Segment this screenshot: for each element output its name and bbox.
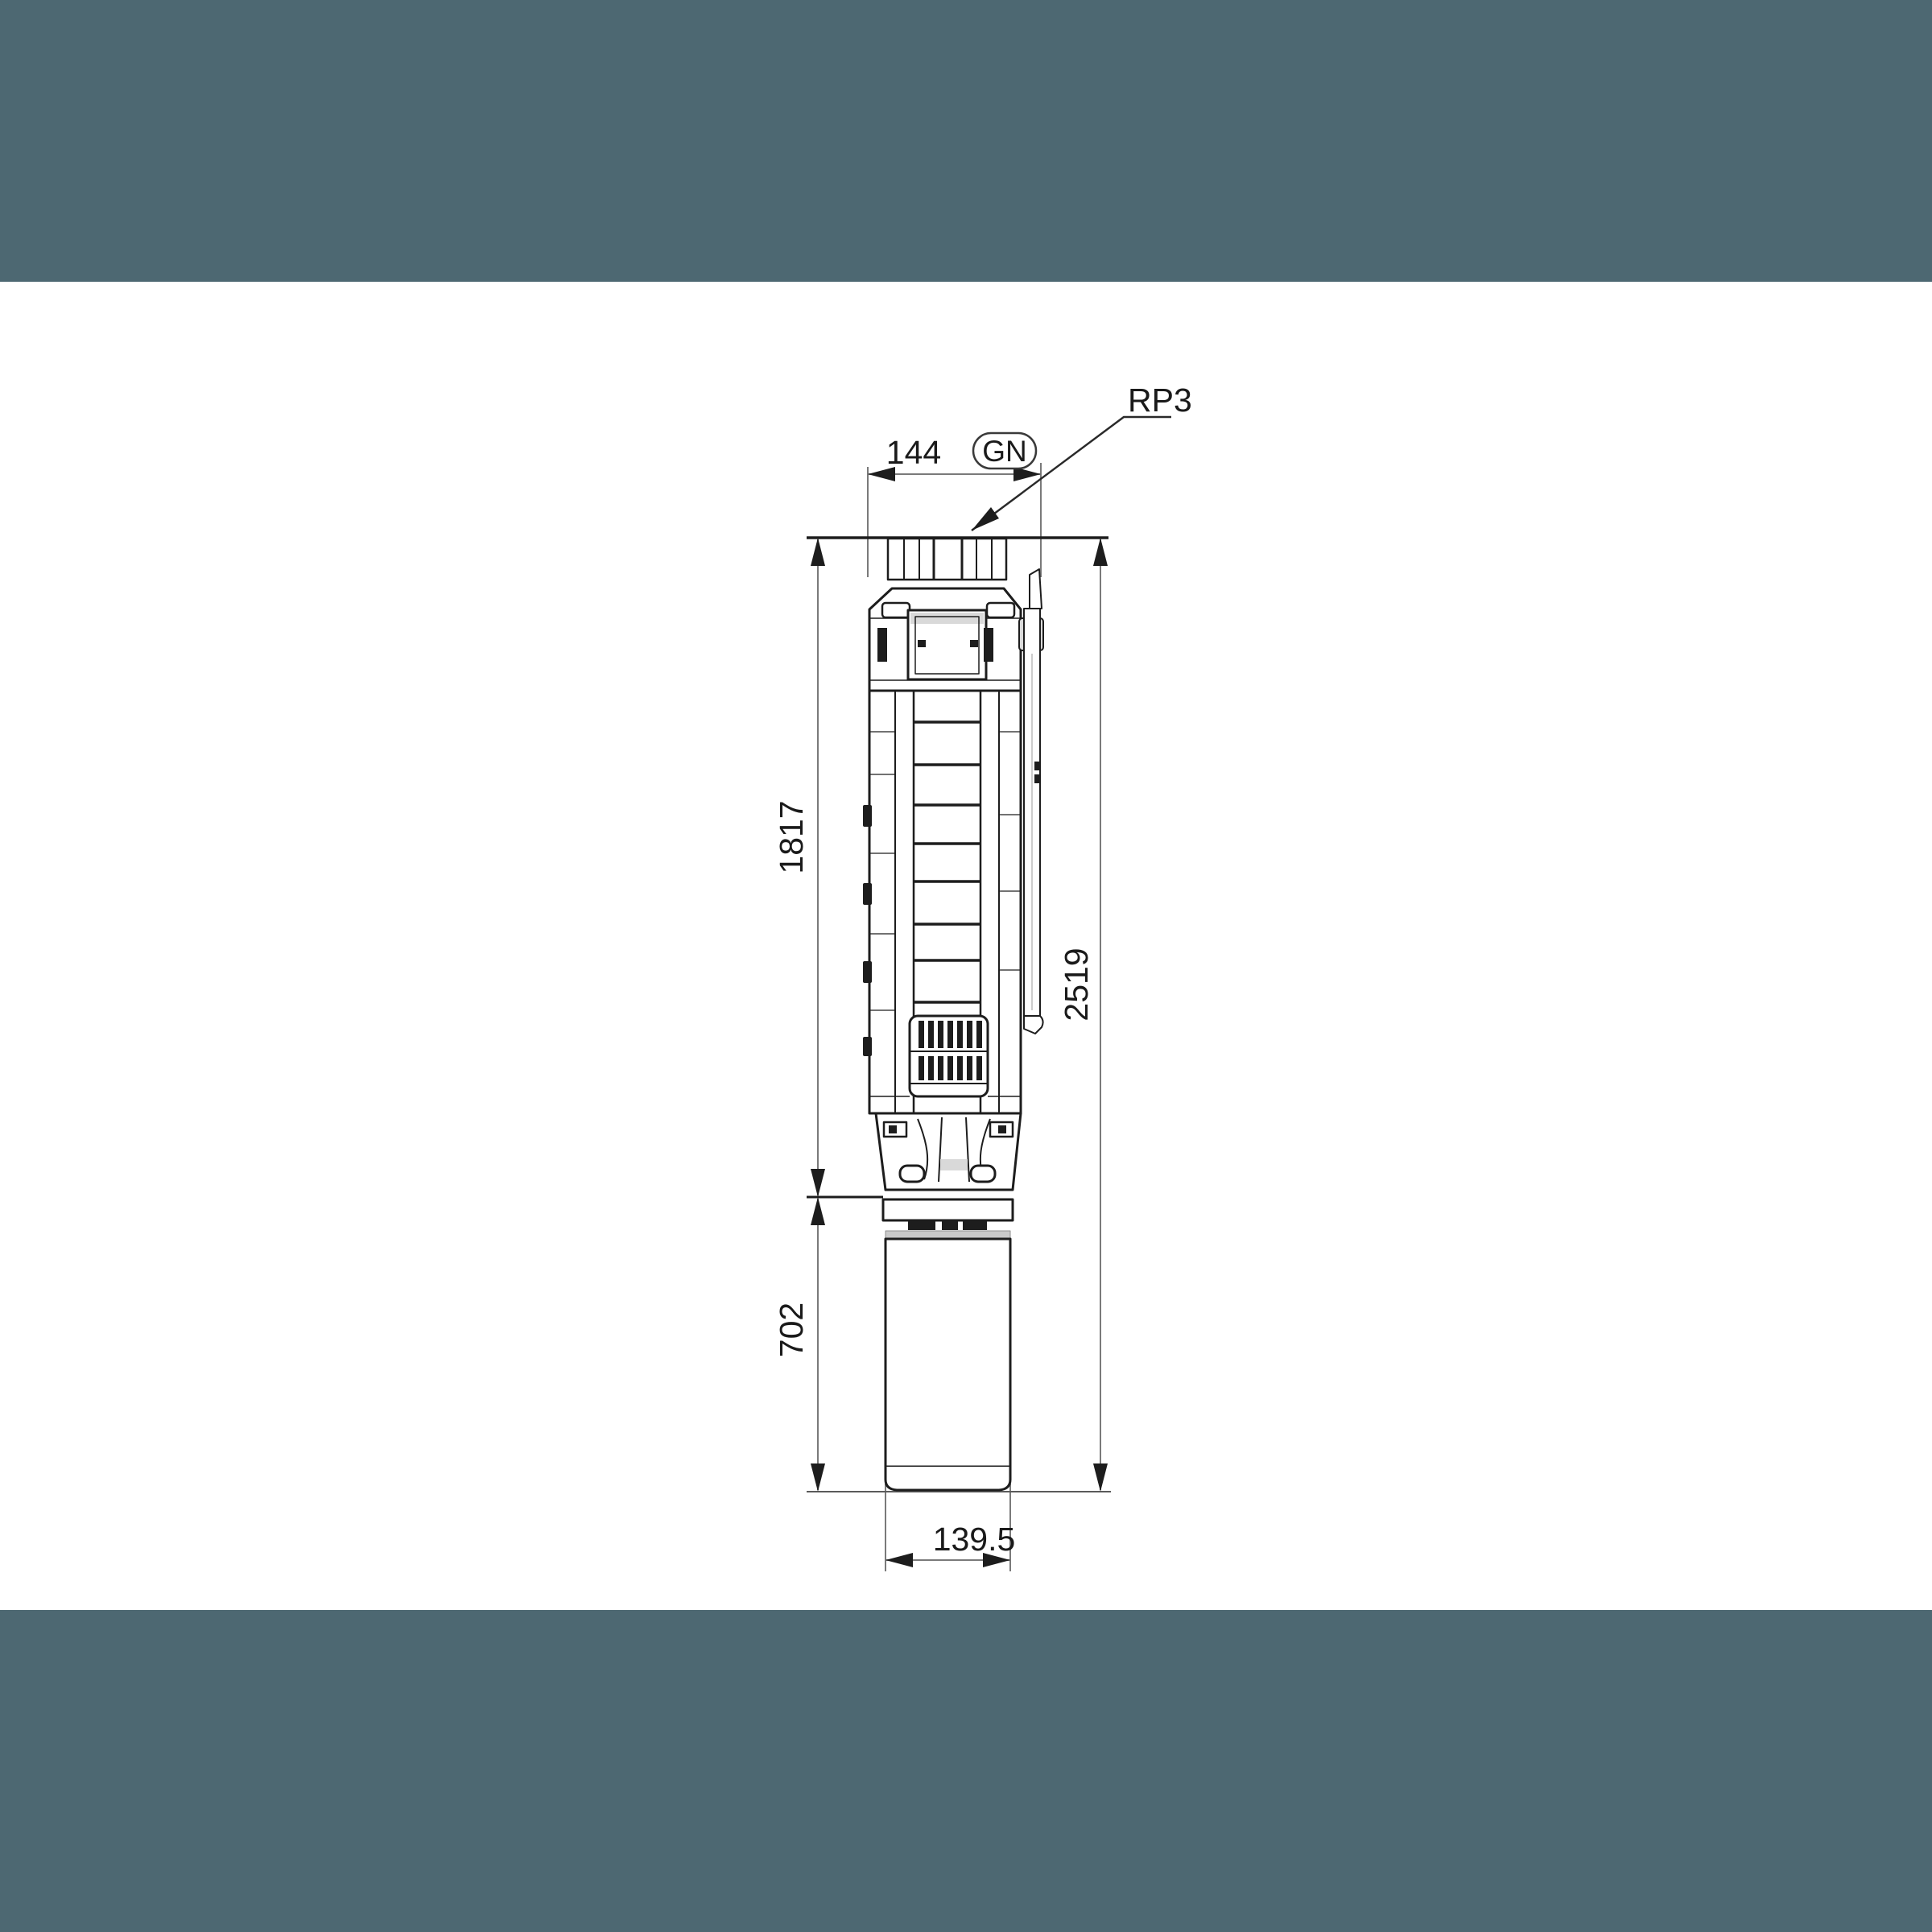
cable-guard-tab bbox=[1030, 569, 1042, 609]
head-clamp-bolt-right bbox=[987, 603, 1014, 617]
motor-body bbox=[885, 1239, 1010, 1467]
discharge-port bbox=[888, 539, 1006, 580]
bracket-bolt-dot bbox=[889, 1125, 897, 1133]
arrow-702-top bbox=[811, 1197, 825, 1225]
motor-cable-connector bbox=[908, 1221, 935, 1230]
strainer-slot bbox=[928, 1056, 934, 1080]
arrow-rp3-leader bbox=[972, 507, 999, 530]
coupling-window-shade bbox=[910, 613, 984, 624]
dim-label-139-5: 139.5 bbox=[933, 1521, 1016, 1558]
pump-dimensional-drawing: 144 GN RP3 1817 702 2519 139.5 bbox=[0, 0, 1932, 1932]
motor-top-plate bbox=[883, 1199, 1013, 1220]
strainer-slot bbox=[919, 1056, 924, 1080]
arrow-1817-bottom bbox=[811, 1169, 825, 1197]
arrow-2519-bottom bbox=[1093, 1463, 1108, 1492]
cable-guard-foot bbox=[1024, 1016, 1043, 1034]
strainer-slot bbox=[967, 1021, 972, 1048]
outlet-badge: GN bbox=[973, 433, 1036, 469]
head-post-left bbox=[877, 628, 887, 662]
strainer-slot bbox=[938, 1056, 943, 1080]
outlet-badge-label: GN bbox=[982, 435, 1027, 468]
bracket-bolt-dot bbox=[998, 1125, 1006, 1133]
arrow-2519-top bbox=[1093, 538, 1108, 566]
cable-clip bbox=[863, 1037, 872, 1056]
strainer-slot bbox=[938, 1021, 943, 1048]
bracket-bolt-pad-right bbox=[971, 1166, 995, 1182]
strainer-slot bbox=[947, 1021, 953, 1048]
arrow-139-left bbox=[885, 1553, 913, 1567]
shaft-nub-left bbox=[918, 640, 926, 647]
strainer-slot bbox=[967, 1056, 972, 1080]
cable-clip bbox=[863, 961, 872, 983]
top-color-band bbox=[0, 0, 1932, 282]
cable-clip bbox=[863, 805, 872, 827]
dim-label-1817: 1817 bbox=[773, 800, 810, 873]
strainer-slot bbox=[947, 1056, 953, 1080]
guard-clamp-dash bbox=[1034, 762, 1040, 770]
bracket-stem-shade bbox=[940, 1159, 968, 1170]
dim-label-702: 702 bbox=[773, 1302, 810, 1357]
strainer-slot bbox=[919, 1021, 924, 1048]
head-post-right bbox=[984, 628, 993, 662]
motor-cable-connector bbox=[942, 1221, 958, 1230]
thread-callout-label: RP3 bbox=[1128, 382, 1192, 419]
arrow-702-bottom bbox=[811, 1463, 825, 1492]
motor-bottom-cap bbox=[885, 1467, 1010, 1490]
head-clamp-bolt-left bbox=[882, 603, 910, 617]
strainer-slot bbox=[976, 1056, 982, 1080]
dim-label-2519: 2519 bbox=[1058, 947, 1095, 1021]
pump-outline bbox=[863, 539, 1043, 1490]
cable-clip bbox=[863, 883, 872, 905]
bracket-bolt-pad-left bbox=[900, 1166, 924, 1182]
strainer-slot bbox=[976, 1021, 982, 1048]
strainer-slot bbox=[928, 1021, 934, 1048]
arrow-1817-top bbox=[811, 538, 825, 566]
strainer-slot bbox=[957, 1021, 963, 1048]
shaft-nub-right bbox=[970, 640, 978, 647]
bottom-color-band bbox=[0, 1610, 1932, 1932]
dim-label-144: 144 bbox=[886, 434, 941, 471]
strainer-slot bbox=[957, 1056, 963, 1080]
motor-cable-connector bbox=[963, 1221, 987, 1230]
guard-clamp-dash bbox=[1034, 774, 1040, 783]
